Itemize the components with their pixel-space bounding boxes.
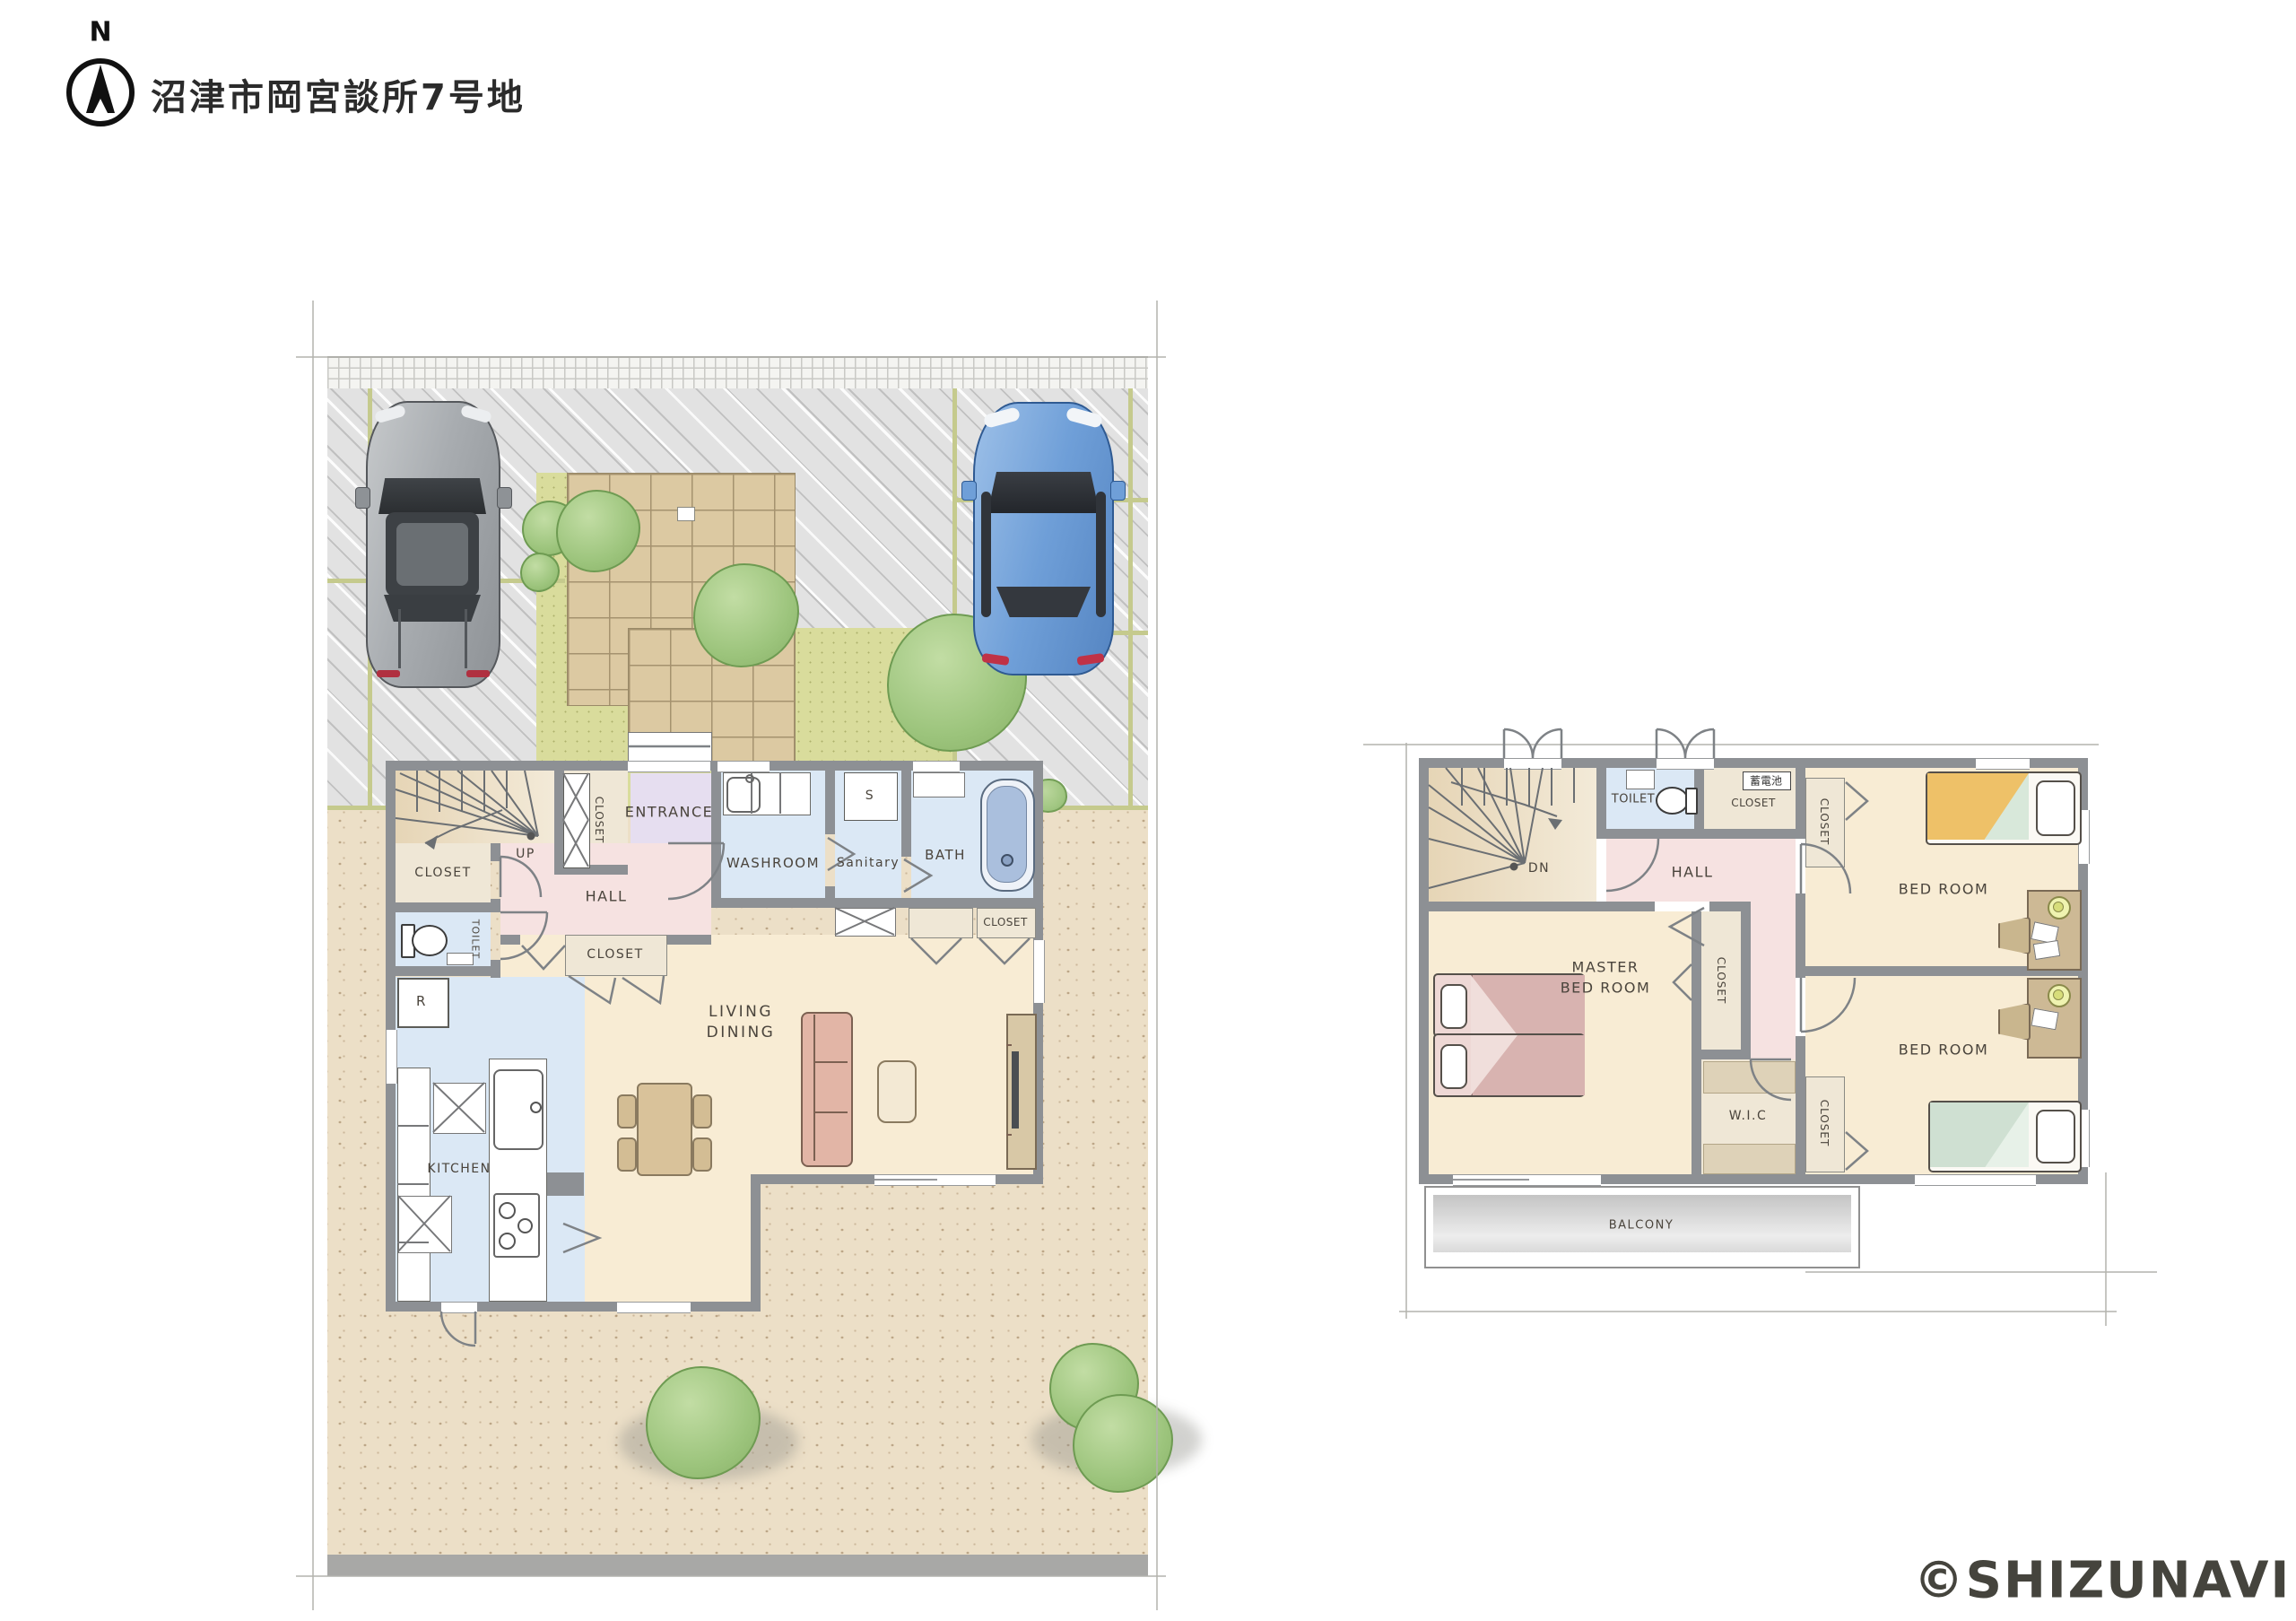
closet-hall-label: CLOSET [587,947,643,962]
wall [1429,902,1655,911]
wic-label: W.I.C [1729,1109,1768,1123]
toilet-tank-2f [1685,788,1698,815]
kitchen-hatch-cabinet [433,1083,486,1134]
hall-floor [554,875,628,935]
wall [665,935,711,945]
bath-label: BATH [925,847,966,863]
balcony-sliding-door [1453,1174,1601,1186]
balcony-label: BALCONY [1609,1219,1674,1233]
refrigerator-label: R [416,993,427,1009]
floorplan-page: ENTRANCE HALL UP CLOSET TOILET CLOSET R … [0,0,2296,1621]
up-label: UP [516,847,535,861]
wall [396,966,500,976]
hall-label-1f: HALL [586,888,628,905]
window [1033,940,1045,1003]
washroom-label: WASHROOM [726,855,820,871]
closet-battery-label: CLOSET [1731,797,1776,809]
car-mirror [355,487,370,509]
desk-lamp-bulb [2053,902,2064,912]
entrance-label: ENTRANCE [625,804,714,821]
wic-shelf [1703,1061,1796,1094]
car-taillight [466,670,490,677]
desk-lamp-bulb [2053,989,2064,1000]
car-mirror [1110,481,1126,501]
sliding-door-rail [1453,1179,1529,1181]
casement-window [1657,758,1714,770]
closet-bathside-a [909,908,973,938]
wall [711,898,1043,908]
stairs-floor-1f [396,771,554,843]
sliding-window [1915,1174,2036,1186]
compass-n-label: N [89,17,111,48]
entrance-sliding-door [628,761,710,772]
dining-chair [692,1094,712,1129]
car-roof-rail [465,609,467,668]
toilet-bowl [412,925,448,956]
bed-south [1928,1101,2082,1172]
car-roof-rail [398,609,401,668]
kitchen-faucet [530,1102,542,1113]
shizunavi-watermark: ©SHIZUNAVI [1914,1552,2292,1610]
car-body [973,402,1114,675]
battery-label: 蓄電池 [1750,773,1782,789]
wic-shelf [1703,1144,1796,1174]
closet-bathside-label: CLOSET [983,916,1028,928]
car-taillight [377,670,400,677]
car-wind-shield [378,478,486,514]
dining-chair [692,1137,712,1172]
wall [825,771,835,834]
gray-car [366,401,500,688]
living-label-line1: LIVING [709,1003,773,1021]
living-dining-floor [585,1174,751,1302]
closet-north-label: CLOSET [1818,798,1831,846]
bed-master [1433,1033,1585,1097]
toilet-sink-2f [1626,770,1655,789]
car-mirror [497,487,512,509]
sofa [801,1012,853,1167]
kitchen-stove [493,1193,540,1258]
bathtub-inner [987,786,1027,883]
wall [1692,911,1701,1050]
washroom-sink [726,777,761,813]
living-label-line2: DINING [707,1024,776,1041]
bed-pillow [1440,1044,1467,1089]
closet-understairs-label: CLOSET [414,866,471,880]
car-side-window [981,492,991,617]
dining-table [637,1083,692,1176]
closet-south-label: CLOSET [1818,1100,1831,1147]
master-label-line1: MASTER [1572,959,1639,976]
window [717,761,770,772]
bed-north [1926,771,2082,845]
window [913,761,960,772]
corridor-floor-2f [1751,902,1796,1059]
wall [901,771,911,857]
wall [751,1184,761,1312]
closet-master-label: CLOSET [1715,957,1727,1005]
bed-pillow [2036,1110,2075,1163]
stove-burner [517,1218,533,1233]
pipe-space [835,908,896,937]
dining-chair [617,1094,637,1129]
bathtub [980,779,1035,892]
sanitary-label: Sanitary [837,856,900,870]
blue-car [973,402,1114,675]
toilet-label-2f: TOILET [1612,793,1655,806]
coffee-table [877,1060,917,1123]
sliding-window-rail [874,1179,937,1181]
window [386,1030,397,1084]
wall [1796,768,1805,839]
dn-label: DN [1528,861,1550,876]
master-label-line2: BED ROOM [1561,980,1651,997]
tree [1073,1394,1173,1493]
sliding-window [874,1174,996,1186]
entrance-porch [628,732,712,763]
kitchen-cabinet-column [397,1068,430,1302]
garden-light [677,507,695,521]
wall [491,843,500,861]
stairs-floor-2f [1429,768,1596,902]
toilet-label-1f: TOILET [470,919,482,959]
dining-chair [617,1137,637,1172]
wall [1692,1050,1701,1174]
sliding-window [617,1302,691,1313]
stall-line [1128,388,1133,810]
tv [1012,1051,1019,1129]
wall [1596,829,1796,839]
wall [1741,911,1751,1050]
car-mirror [961,481,977,501]
car-side-window [1096,492,1106,617]
wall [1419,758,1429,1184]
wall [711,771,721,908]
wall [396,902,500,912]
page-title: 沼津市岡宮談所7号地 [151,68,526,120]
wall [1796,1036,1805,1174]
wall [1709,902,1751,911]
wall [500,935,520,945]
kitchen-hatch-cabinet [398,1196,452,1253]
car-wind-shield [987,472,1100,513]
stove-burner [499,1202,516,1219]
toilet-bowl-2f [1656,787,1689,815]
wall [1796,893,1805,978]
bedroom-south-label: BED ROOM [1899,1041,1989,1059]
bed-pillow [2036,780,2075,836]
shelf-label: S [865,789,874,803]
kitchen-label: KITCHEN [427,1162,491,1176]
hall-label-2f: HALL [1672,864,1714,881]
sliding-window [1976,758,2030,770]
site-south-edge [327,1555,1148,1576]
closet-entry-label: CLOSET [593,797,605,844]
bed-pillow [1440,984,1467,1029]
car-rear-window [996,587,1091,617]
stove-burner [499,1233,516,1250]
compass-needle-notch [93,99,108,113]
bedroom-north-label: BED ROOM [1899,881,1989,898]
car-sunroof [396,523,468,586]
closet-hatch-box [563,773,590,868]
bathtub-drain [1001,854,1013,867]
bath-counter [913,772,965,797]
casement-window [1504,758,1561,770]
kitchen-door-opening [441,1302,477,1313]
